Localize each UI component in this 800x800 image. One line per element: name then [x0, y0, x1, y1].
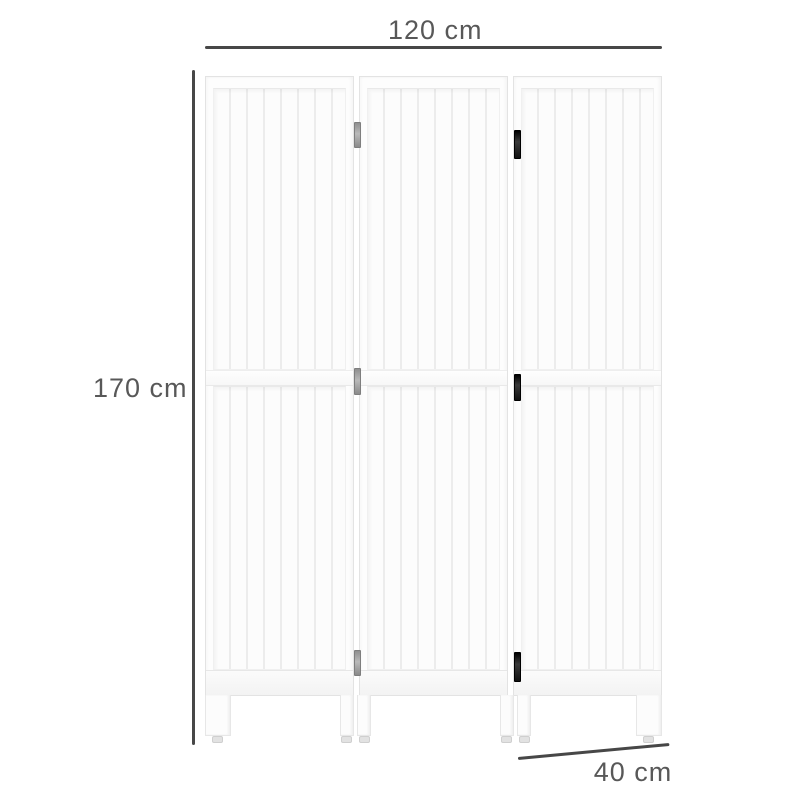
panel-upper-slats [213, 88, 346, 370]
panel-lower-slats [521, 386, 654, 670]
panel-upper-slats [521, 88, 654, 370]
height-dimension-line [192, 70, 195, 745]
divider-leg [636, 695, 662, 736]
hinge-bottom-right-junction [514, 652, 521, 682]
divider-leg [205, 695, 231, 736]
hinge-top-right-junction [514, 130, 521, 159]
panel-upper-slats [367, 88, 500, 370]
product-dimension-diagram: 120 cm 170 cm [0, 0, 800, 800]
panel-top-rail [360, 77, 507, 88]
panel-lower-slats [213, 386, 346, 670]
panel-bottom-rail [206, 670, 353, 695]
divider-foot [359, 736, 370, 743]
panel-mid-rail [360, 370, 507, 386]
divider-foot [501, 736, 512, 743]
divider-leg [357, 695, 371, 736]
hinge-middle-right-junction [514, 374, 521, 401]
divider-foot [341, 736, 352, 743]
divider-panel-3 [513, 76, 662, 696]
width-dimension-line [205, 46, 662, 49]
panel-bottom-rail [360, 670, 507, 695]
panel-top-rail [206, 77, 353, 88]
hinge-top-left-junction [354, 122, 361, 148]
divider-foot [519, 736, 530, 743]
room-divider [205, 76, 662, 696]
divider-leg [500, 695, 514, 736]
divider-foot [212, 736, 223, 743]
height-dimension-label: 170 cm [93, 373, 178, 404]
panel-top-rail [514, 77, 661, 88]
width-dimension-label: 120 cm [388, 15, 478, 46]
divider-leg [340, 695, 354, 736]
divider-foot [643, 736, 654, 743]
panel-lower-slats [367, 386, 500, 670]
panel-mid-rail [206, 370, 353, 386]
panel-bottom-rail [514, 670, 661, 695]
divider-leg [517, 695, 531, 736]
panel-mid-rail [514, 370, 661, 386]
depth-dimension-label: 40 cm [593, 757, 673, 788]
divider-panel-2 [359, 76, 508, 696]
hinge-bottom-left-junction [354, 650, 361, 676]
divider-panel-1 [205, 76, 354, 696]
hinge-middle-left-junction [354, 368, 361, 395]
